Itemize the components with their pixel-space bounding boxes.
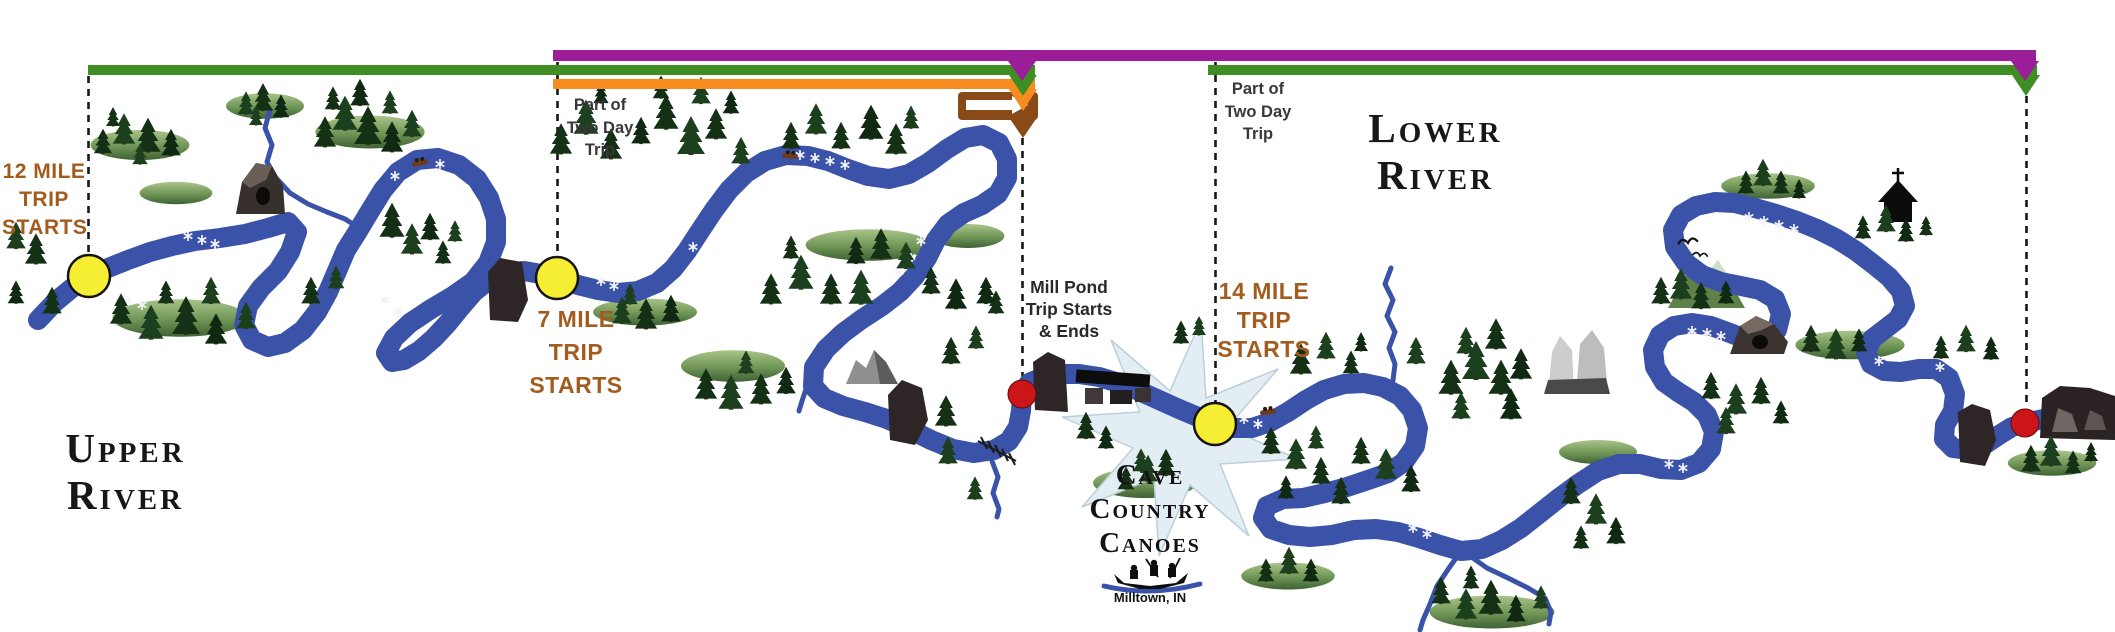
label-line: Two Day [540, 117, 660, 140]
label-line: TRIP [2, 186, 86, 214]
title-line: Lower [1338, 105, 1533, 152]
label-line: Trip Starts [1009, 298, 1129, 320]
marker-trip-end [2011, 409, 2039, 437]
marker-12-mile-start [68, 255, 110, 297]
label-line: Trip [540, 139, 660, 162]
end-landing-buildings [2040, 386, 2115, 440]
marker-14-mile-start [1194, 403, 1236, 445]
mill-building [1033, 352, 1068, 412]
14-mile-trip-bar [1208, 65, 2040, 96]
cave-rock-upper-icon [236, 163, 285, 214]
label-part-of-two-day-trip-left: Part of Two Day Trip [540, 94, 660, 162]
label-mill-pond-trip: Mill Pond Trip Starts & Ends [1009, 276, 1129, 342]
title-line: Cave [1056, 458, 1244, 492]
title-line: Upper [28, 425, 223, 472]
label-line: Two Day [1198, 101, 1318, 124]
label-line: Milltown, IN [1090, 590, 1210, 605]
building-takeout [1958, 404, 1996, 466]
marker-mill-pond [1008, 380, 1036, 408]
label-line: 7 MILE [506, 303, 646, 336]
label-line: STARTS [2, 214, 86, 242]
label-milltown-in: Milltown, IN [1090, 590, 1210, 605]
label-line: Part of [540, 94, 660, 117]
title-line: River [1338, 152, 1533, 199]
title-line: Canoes [1056, 526, 1244, 560]
twin-pillars-rock-icon [1544, 330, 1610, 394]
label-line: STARTS [1189, 335, 1339, 364]
river-trip-map: 12 MILE TRIP STARTS 7 MILE TRIP STARTS 1… [0, 0, 2115, 632]
title-cave-country-canoes: Cave Country Canoes [1056, 458, 1244, 560]
label-line: STARTS [506, 369, 646, 402]
title-line: Country [1056, 492, 1244, 526]
title-line: River [28, 472, 223, 519]
label-12-mile-trip-starts: 12 MILE TRIP STARTS [2, 158, 86, 242]
gray-crag-icon [846, 350, 898, 384]
label-line: & Ends [1009, 320, 1129, 342]
label-line: TRIP [1189, 306, 1339, 335]
label-line: Mill Pond [1009, 276, 1129, 298]
canoe-logo-icon [1104, 558, 1200, 591]
label-14-mile-trip-starts: 14 MILE TRIP STARTS [1189, 277, 1339, 364]
label-7-mile-trip-starts: 7 MILE TRIP STARTS [506, 303, 646, 402]
label-part-of-two-day-trip-right: Part of Two Day Trip [1198, 78, 1318, 146]
label-line: Part of [1198, 78, 1318, 101]
label-line: 12 MILE [2, 158, 86, 186]
label-line: Trip [1198, 123, 1318, 146]
label-line: TRIP [506, 336, 646, 369]
marker-7-mile-start [536, 257, 578, 299]
title-lower-river: Lower River [1338, 105, 1533, 199]
label-line: 14 MILE [1189, 277, 1339, 306]
title-upper-river: Upper River [28, 425, 223, 519]
